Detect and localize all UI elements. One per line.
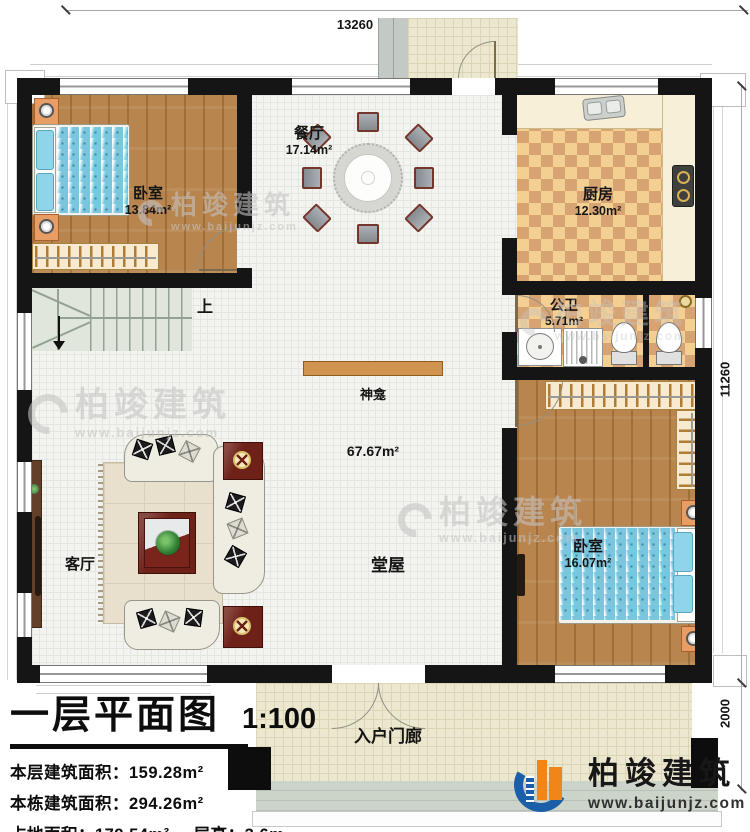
top-eave-line bbox=[30, 64, 378, 77]
wall-segment bbox=[32, 273, 252, 288]
room-label-bedroom1: 卧室 13.84m² bbox=[98, 185, 198, 217]
brand-name: 柏竣建筑 bbox=[588, 758, 746, 789]
wardrobe bbox=[545, 381, 705, 410]
rug-fringe bbox=[98, 464, 103, 622]
floor-drain-icon bbox=[679, 295, 692, 308]
bed-pillow bbox=[36, 130, 54, 170]
stove-icon bbox=[672, 165, 694, 207]
wall-segment bbox=[502, 281, 712, 295]
shrine-label: 神龛 bbox=[346, 387, 400, 402]
hall-area-label: 67.67m² bbox=[330, 443, 416, 460]
window bbox=[60, 78, 188, 95]
dimension-top-value: 13260 bbox=[320, 17, 390, 32]
stairs-up-label: 上 bbox=[192, 299, 218, 318]
wall-segment bbox=[237, 95, 252, 228]
floor-plan: 卧室 13.84m² 餐厅 17.14m² 厨房 12.30m² 公卫 5.71… bbox=[0, 0, 750, 832]
left-eave-line bbox=[7, 80, 17, 680]
bathroom-sink-icon bbox=[526, 333, 554, 360]
stat-floor-area: 本层建筑面积：159.28m² bbox=[10, 759, 316, 783]
shower-icon bbox=[563, 328, 603, 367]
bathroom-door-leaf bbox=[515, 295, 518, 332]
wall-segment bbox=[188, 78, 292, 95]
stair-rail bbox=[58, 317, 192, 319]
room-label-dining: 餐厅 17.14m² bbox=[263, 125, 355, 157]
toilet-icon bbox=[656, 322, 682, 353]
wall-segment bbox=[502, 367, 712, 380]
tv-icon bbox=[35, 516, 41, 596]
window bbox=[17, 593, 32, 637]
dimension-line-right bbox=[741, 86, 742, 791]
top-porch-door-leaf bbox=[494, 41, 496, 78]
brand-logo-icon bbox=[512, 752, 578, 818]
kitchen-sink bbox=[582, 95, 626, 121]
table-medallion-icon bbox=[233, 617, 251, 635]
dimension-right-main-value: 11260 bbox=[718, 350, 733, 410]
room-label-bedroom2: 卧室 16.07m² bbox=[538, 538, 638, 570]
wall-segment bbox=[17, 512, 32, 593]
wall-segment bbox=[207, 665, 332, 683]
bed-pillow bbox=[36, 173, 54, 211]
brand-building-icon bbox=[549, 767, 562, 800]
window bbox=[555, 665, 665, 683]
bed-pillow bbox=[673, 532, 693, 572]
wall-segment bbox=[17, 665, 40, 683]
wall-segment bbox=[695, 78, 712, 298]
plan-title: 一层平面图 bbox=[10, 684, 220, 740]
toilet-icon bbox=[611, 351, 637, 365]
wardrobe-rod bbox=[691, 413, 693, 487]
bedroom2-door-leaf bbox=[515, 380, 518, 427]
stair-arrow-head-icon bbox=[53, 341, 65, 350]
brand-building-icon bbox=[526, 776, 534, 802]
wall-segment bbox=[502, 95, 517, 135]
wall-segment bbox=[502, 428, 517, 665]
room-label-bathroom: 公卫 5.71m² bbox=[522, 297, 606, 328]
dining-chair bbox=[302, 167, 322, 189]
shrine-shelf bbox=[303, 361, 443, 376]
wall-segment bbox=[17, 390, 32, 462]
wall-segment bbox=[495, 78, 555, 95]
table-medallion-icon bbox=[233, 451, 251, 469]
porch-label: 入户门廊 bbox=[328, 727, 448, 747]
room-label-hall: 堂屋 bbox=[348, 556, 428, 576]
wardrobe-rod bbox=[35, 257, 156, 259]
room-label-living: 客厅 bbox=[52, 556, 108, 574]
wardrobe bbox=[32, 243, 159, 270]
brand-building-icon bbox=[537, 760, 547, 800]
dining-chair bbox=[414, 167, 434, 189]
tv-icon bbox=[517, 554, 525, 596]
stair-direction-arrow bbox=[58, 316, 60, 342]
wall-segment bbox=[502, 332, 517, 367]
bed-pillow bbox=[673, 575, 693, 613]
dining-table-center bbox=[361, 171, 375, 185]
wall-segment bbox=[17, 78, 32, 313]
wall-segment bbox=[30, 78, 60, 95]
plant-icon bbox=[156, 531, 180, 555]
window bbox=[555, 78, 658, 95]
window bbox=[17, 313, 32, 390]
room-label-kitchen: 厨房 12.30m² bbox=[552, 186, 644, 218]
lamp-icon bbox=[39, 103, 54, 118]
dimension-right-porch-value: 2000 bbox=[718, 689, 733, 739]
plan-scale: 1:100 bbox=[242, 703, 316, 736]
wardrobe-rod bbox=[548, 396, 702, 398]
lamp-icon bbox=[39, 219, 54, 234]
title-rule bbox=[10, 744, 248, 749]
toilet-divider-wall bbox=[643, 295, 649, 367]
stair-treads bbox=[90, 288, 192, 351]
toilet-icon bbox=[656, 351, 682, 365]
dining-chair bbox=[357, 224, 379, 244]
title-block: 一层平面图 1:100 本层建筑面积：159.28m² 本栋建筑面积：294.2… bbox=[10, 684, 316, 832]
sofa-pillow-icon bbox=[184, 608, 203, 627]
stat-building-area: 本栋建筑面积：294.26m² bbox=[10, 790, 316, 814]
brand-logo: 柏竣建筑 www.baijunjz.com bbox=[512, 752, 746, 818]
brand-url: www.baijunjz.com bbox=[588, 796, 746, 812]
dimension-line-top bbox=[65, 10, 748, 11]
wall-segment bbox=[665, 665, 712, 683]
window bbox=[17, 462, 32, 512]
wall-segment bbox=[410, 78, 452, 95]
window bbox=[292, 78, 410, 95]
window bbox=[695, 298, 712, 348]
bedroom1-door-leaf bbox=[199, 269, 241, 271]
dining-chair bbox=[357, 112, 379, 132]
wall-segment bbox=[695, 348, 712, 683]
top-eave-line bbox=[518, 64, 712, 77]
toilet-icon bbox=[611, 322, 637, 353]
wall-segment bbox=[425, 665, 555, 683]
stat-footprint-height: 占地面积：179.54m²层高：3.6m bbox=[10, 821, 316, 832]
window bbox=[40, 665, 207, 683]
